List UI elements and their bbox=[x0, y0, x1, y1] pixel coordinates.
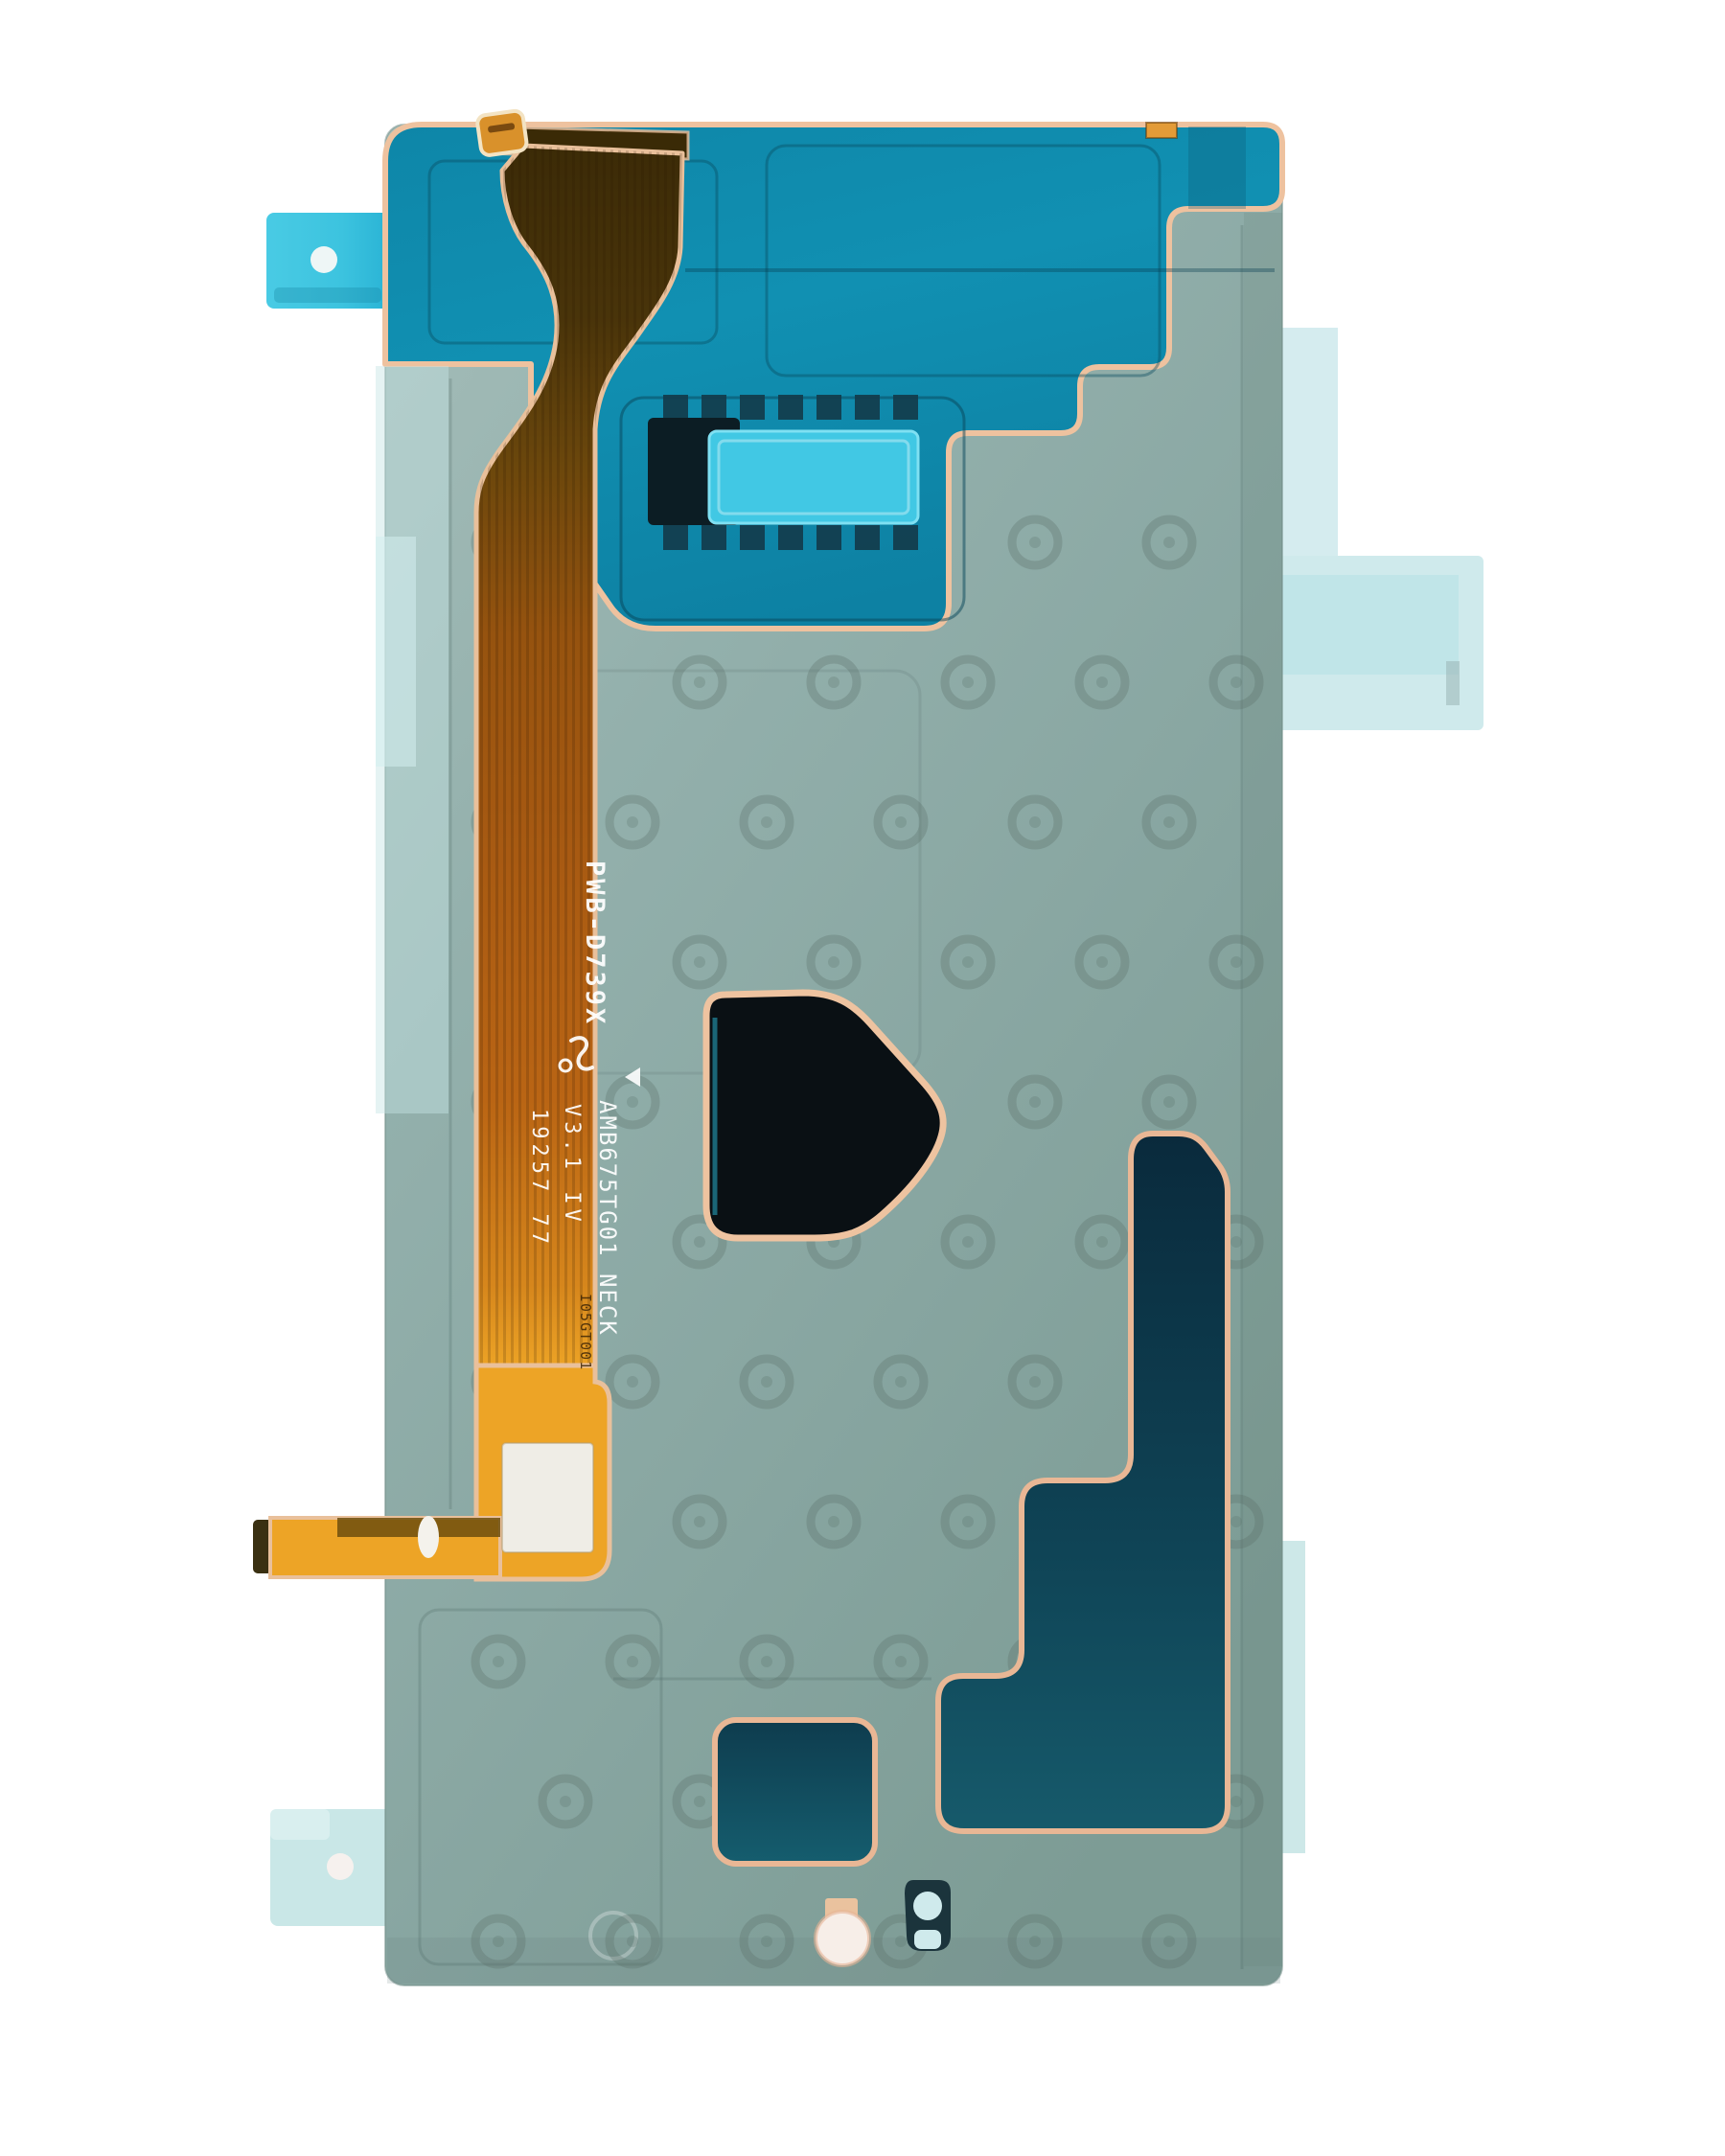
tab-notch bbox=[270, 1809, 330, 1840]
sensor-dot-center bbox=[1029, 1376, 1041, 1388]
sensor-dot-center bbox=[1230, 956, 1242, 968]
sensor-dot-center bbox=[627, 1376, 638, 1388]
alignment-dot bbox=[327, 1853, 354, 1880]
sensor-dot-center bbox=[1230, 677, 1242, 688]
keyhole-circle bbox=[913, 1892, 942, 1920]
sensor-dot-center bbox=[895, 1936, 907, 1947]
edge-shade-right bbox=[1244, 213, 1282, 1966]
sensor-dot-center bbox=[1029, 816, 1041, 828]
sensor-dot-center bbox=[1096, 677, 1108, 688]
sensor-dot-center bbox=[962, 677, 974, 688]
sensor-dot-center bbox=[627, 816, 638, 828]
tab-texture bbox=[274, 287, 381, 303]
pull-tab-right bbox=[1265, 328, 1483, 730]
sensor-dot-center bbox=[761, 1376, 772, 1388]
camera-keyhole-mark bbox=[905, 1880, 951, 1951]
sensor-dot-center bbox=[828, 677, 839, 688]
sensor-dot-center bbox=[1230, 1516, 1242, 1527]
sensor-dot-center bbox=[493, 1936, 504, 1947]
left-liner-strip-bright bbox=[376, 537, 416, 767]
sensor-dot-center bbox=[761, 1656, 772, 1667]
sensor-dot-center bbox=[1230, 1236, 1242, 1248]
tab-mark bbox=[1446, 661, 1460, 705]
sensor-dot-center bbox=[962, 956, 974, 968]
sensor-dot-center bbox=[694, 1516, 705, 1527]
pull-tab-bottom-left bbox=[270, 1809, 402, 1926]
product-photo: PWB-D739X AMB675TG01 NECK V3.1 IV 19257 … bbox=[0, 0, 1725, 2156]
white-label bbox=[502, 1443, 593, 1552]
arm-oval-hole bbox=[418, 1516, 439, 1558]
sensor-dot-center bbox=[1029, 1936, 1041, 1947]
flex-gold-tab bbox=[476, 110, 527, 156]
alignment-dot bbox=[310, 246, 337, 273]
sensor-dot-center bbox=[1163, 1936, 1175, 1947]
marking-stamp: I05GT001 bbox=[577, 1294, 594, 1370]
sensor-dot-center bbox=[1163, 816, 1175, 828]
sensor-dot-center bbox=[1096, 956, 1108, 968]
sensor-dot-center bbox=[1163, 537, 1175, 548]
sensor-dot-center bbox=[694, 956, 705, 968]
sensor-dot-center bbox=[1029, 537, 1041, 548]
sensor-dot-center bbox=[694, 1236, 705, 1248]
sensor-dot-center bbox=[828, 1516, 839, 1527]
sensor-dot-center bbox=[761, 1936, 772, 1947]
pull-tab-left bbox=[266, 213, 393, 309]
sensor-dot-center bbox=[962, 1236, 974, 1248]
top-edge-notch-mark bbox=[1146, 123, 1177, 138]
sensor-dot-center bbox=[1096, 1236, 1108, 1248]
sensor-dot-center bbox=[895, 1656, 907, 1667]
sensor-dot-center bbox=[761, 816, 772, 828]
marking-version: V3.1 IV bbox=[560, 1104, 584, 1227]
digitizer-film-photo: PWB-D739X AMB675TG01 NECK V3.1 IV 19257 … bbox=[0, 0, 1725, 2156]
sensor-dot-center bbox=[962, 1516, 974, 1527]
sensor-dot-center bbox=[560, 1796, 571, 1807]
sensor-dot-center bbox=[493, 1656, 504, 1667]
sensor-dot-center bbox=[1230, 1796, 1242, 1807]
white-circle-mark bbox=[816, 1912, 869, 1965]
keyhole-slot bbox=[914, 1930, 941, 1949]
tab-inner bbox=[1265, 575, 1459, 675]
teal-shade bbox=[1188, 126, 1246, 209]
marking-part-number: PWB-D739X bbox=[580, 860, 609, 1026]
sensor-dot-center bbox=[627, 1096, 638, 1108]
vibrator-cutout bbox=[715, 1720, 875, 1864]
marking-model: AMB675TG01 NECK bbox=[594, 1100, 621, 1337]
sensor-dot-center bbox=[828, 956, 839, 968]
cyan-pull-sticker bbox=[709, 431, 918, 523]
sensor-dot-center bbox=[895, 816, 907, 828]
sensor-dot-center bbox=[895, 1376, 907, 1388]
sensor-dot-center bbox=[627, 1936, 638, 1947]
sensor-dot-center bbox=[694, 677, 705, 688]
marking-date-code: 19257 77 bbox=[527, 1109, 551, 1249]
sensor-dot-center bbox=[1029, 1096, 1041, 1108]
sensor-dot-center bbox=[1163, 1096, 1175, 1108]
sensor-dot-center bbox=[627, 1656, 638, 1667]
sensor-dot-center bbox=[694, 1796, 705, 1807]
